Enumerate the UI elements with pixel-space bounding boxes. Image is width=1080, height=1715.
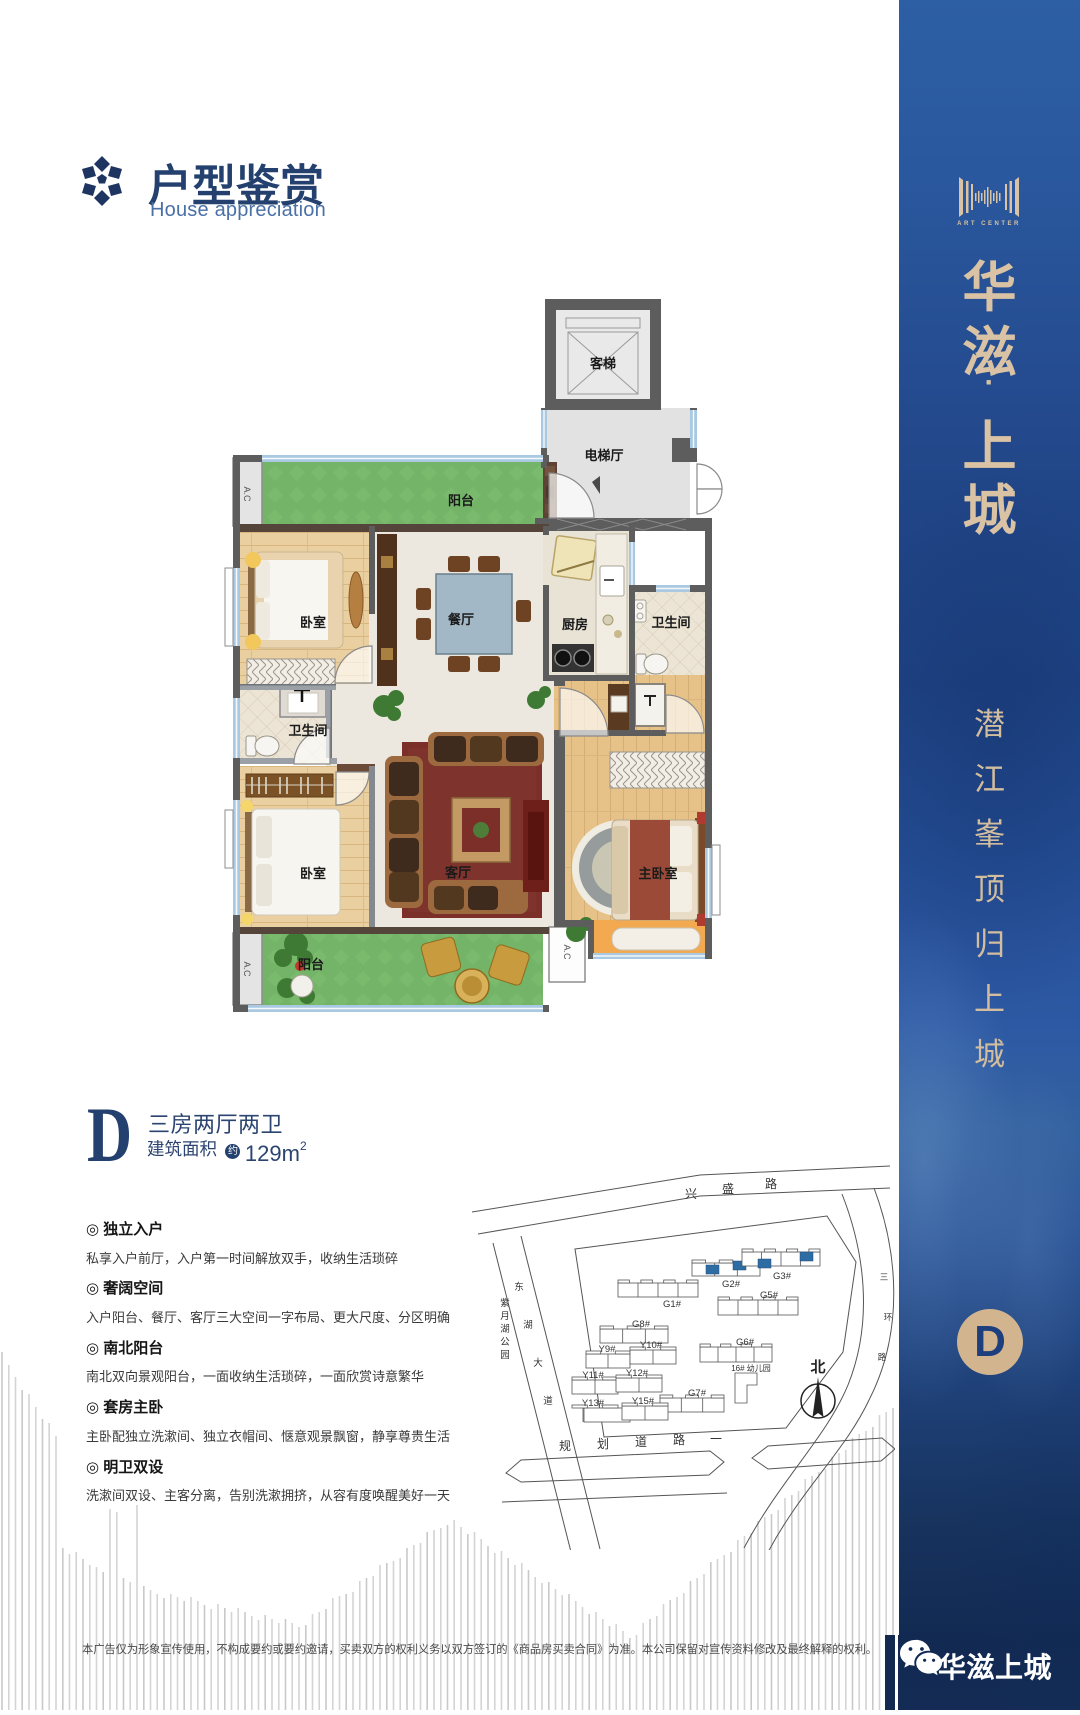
svg-text:道: 道 [635, 1435, 647, 1449]
svg-text:Y13#: Y13# [582, 1398, 605, 1409]
svg-text:三: 三 [880, 1272, 889, 1282]
svg-text:环: 环 [884, 1312, 893, 1322]
svg-text:划: 划 [597, 1437, 609, 1451]
svg-text:G1#: G1# [663, 1299, 682, 1310]
svg-text:ART CENTER: ART CENTER [957, 221, 1021, 227]
svg-text:紫: 紫 [500, 1298, 510, 1309]
svg-text:阳台: 阳台 [298, 957, 324, 972]
svg-text:Y12#: Y12# [626, 1368, 649, 1379]
svg-text:卫生间: 卫生间 [651, 615, 690, 630]
svg-text:餐厅: 餐厅 [447, 612, 474, 627]
svg-text:卧室: 卧室 [300, 615, 326, 630]
svg-text:G3#: G3# [773, 1271, 792, 1282]
svg-text:月: 月 [500, 1311, 510, 1322]
svg-text:湖: 湖 [500, 1324, 510, 1335]
svg-text:主卧室: 主卧室 [638, 866, 677, 881]
svg-text:卧室: 卧室 [300, 866, 326, 881]
svg-text:Y10#: Y10# [640, 1340, 663, 1351]
svg-text:16# 幼儿园: 16# 幼儿园 [731, 1363, 771, 1373]
svg-text:园: 园 [500, 1350, 510, 1361]
svg-text:A.C: A.C [242, 961, 252, 977]
svg-text:G6#: G6# [736, 1337, 755, 1348]
svg-text:湖: 湖 [523, 1320, 533, 1331]
svg-text:一: 一 [710, 1432, 722, 1446]
svg-text:厨房: 厨房 [562, 617, 588, 632]
svg-text:路: 路 [673, 1432, 685, 1447]
svg-text:A.C: A.C [562, 944, 572, 960]
svg-text:阳台: 阳台 [448, 493, 474, 508]
svg-text:公: 公 [500, 1337, 510, 1348]
svg-text:北: 北 [810, 1359, 825, 1376]
svg-text:路: 路 [878, 1352, 887, 1362]
svg-text:G5#: G5# [760, 1290, 779, 1301]
svg-text:路: 路 [765, 1176, 777, 1191]
svg-text:G2#: G2# [722, 1279, 741, 1290]
svg-text:规: 规 [559, 1438, 571, 1453]
svg-text:盛: 盛 [722, 1181, 734, 1196]
svg-text:道: 道 [543, 1395, 553, 1407]
svg-text:G8#: G8# [632, 1319, 651, 1330]
svg-text:电梯厅: 电梯厅 [584, 448, 623, 463]
svg-text:Y9#: Y9# [599, 1344, 617, 1355]
svg-text:东: 东 [514, 1281, 524, 1293]
svg-text:A.C: A.C [242, 486, 252, 502]
svg-text:G7#: G7# [688, 1388, 707, 1399]
svg-text:兴: 兴 [685, 1187, 697, 1201]
svg-text:客厅: 客厅 [445, 865, 471, 880]
svg-text:卫生间: 卫生间 [288, 723, 327, 738]
svg-text:Y11#: Y11# [582, 1370, 604, 1381]
svg-text:客梯: 客梯 [590, 356, 616, 371]
svg-text:Y15#: Y15# [632, 1396, 655, 1407]
svg-text:大: 大 [533, 1357, 543, 1369]
